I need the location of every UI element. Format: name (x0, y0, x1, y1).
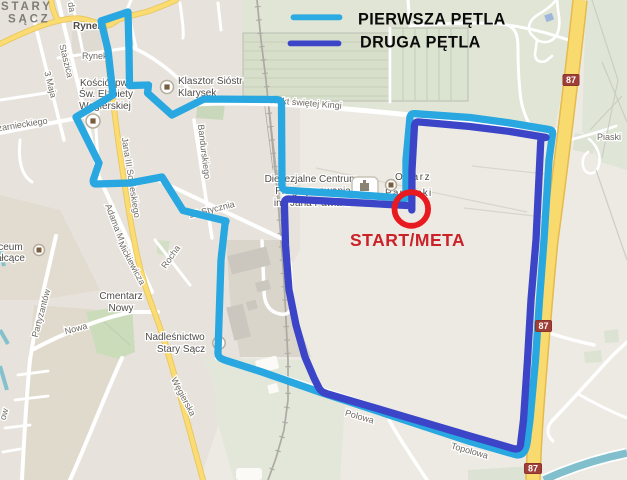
svg-text:Piaski: Piaski (597, 132, 621, 142)
svg-text:87: 87 (566, 75, 576, 85)
svg-text:SĄCZ: SĄCZ (8, 14, 51, 26)
svg-text:PIERWSZA PĘTLA: PIERWSZA PĘTLA (358, 11, 506, 29)
svg-text:Nowy: Nowy (108, 303, 133, 314)
svg-text:87: 87 (538, 321, 548, 331)
svg-text:START/META: START/META (350, 230, 465, 250)
svg-text:da: da (66, 1, 78, 13)
svg-text:Cmentarz: Cmentarz (99, 291, 142, 302)
svg-text:DRUGA PĘTLA: DRUGA PĘTLA (360, 34, 481, 52)
svg-text:Nadleśnictwo: Nadleśnictwo (145, 332, 205, 343)
svg-text:ałcące: ałcące (0, 253, 25, 264)
svg-text:Stary Sącz: Stary Sącz (157, 344, 205, 355)
svg-text:87: 87 (528, 464, 538, 474)
svg-text:Klasztor Sióstr: Klasztor Sióstr (178, 76, 243, 87)
svg-text:Kościół pw.: Kościół pw. (80, 78, 130, 89)
svg-text:iceum: iceum (0, 242, 23, 253)
svg-text:Rynek: Rynek (82, 51, 108, 61)
svg-text:STARY: STARY (1, 1, 53, 13)
